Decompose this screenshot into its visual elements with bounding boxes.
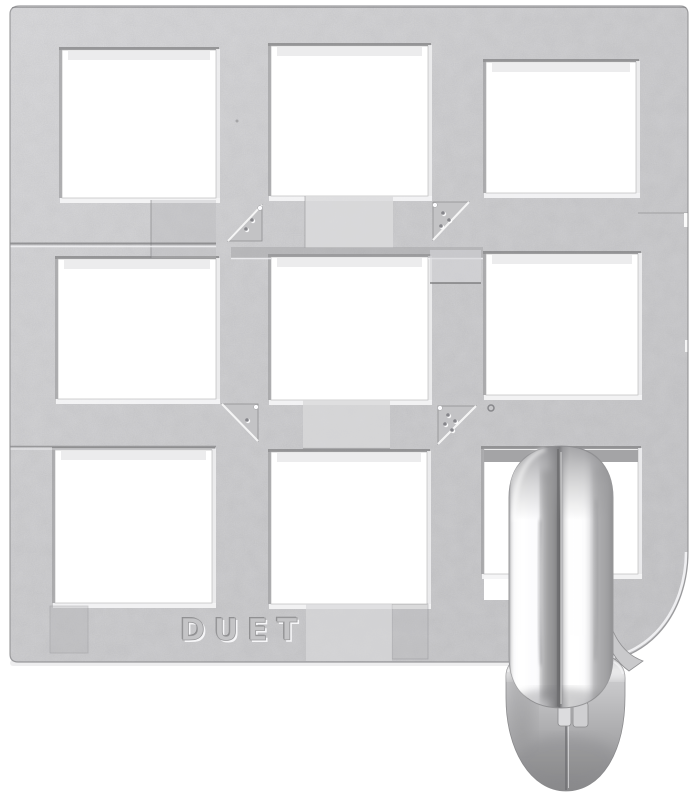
grid-hole (483, 59, 640, 198)
dust-speck (236, 120, 239, 123)
brand-emboss: DUET DUET DUET (179, 612, 308, 650)
puzzle-image: DUET DUET DUET (0, 0, 692, 800)
grid-hole (52, 447, 216, 608)
grid-hole (59, 47, 220, 203)
brand-emboss-face: DUET (180, 613, 306, 648)
grid-hole (268, 254, 432, 405)
grid-hole (268, 449, 431, 609)
puzzle-photo: DUET DUET DUET (0, 0, 692, 800)
grid-hole (483, 251, 642, 400)
grid-hole (268, 43, 432, 201)
grid-hole (55, 256, 220, 404)
ring-body (509, 446, 613, 716)
